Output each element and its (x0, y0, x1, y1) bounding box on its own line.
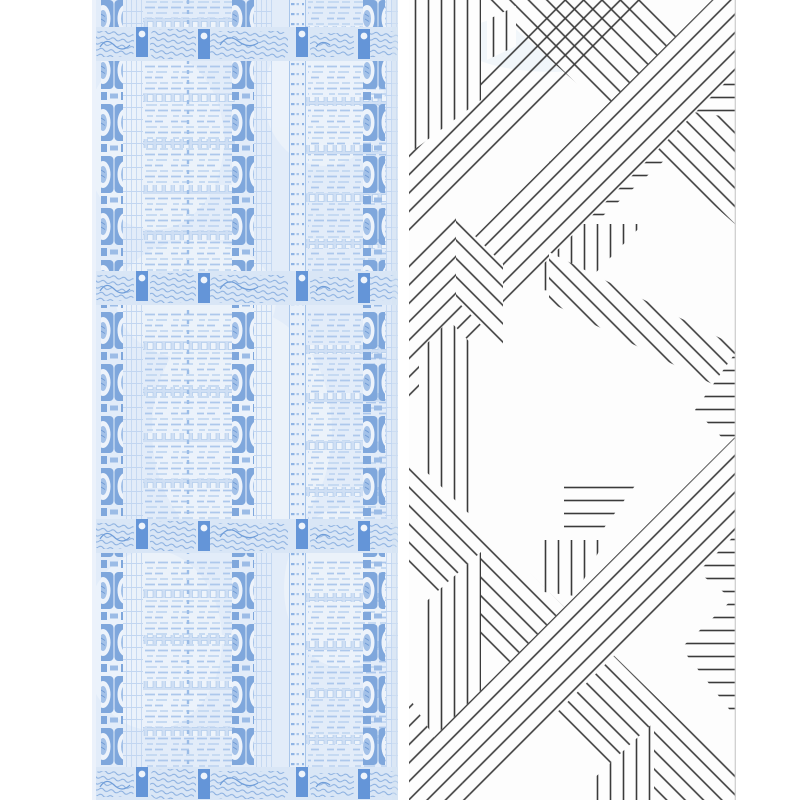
right-edge-shade (392, 0, 398, 800)
left-edge-shade (92, 0, 96, 800)
wallpaper-sample-geometric (409, 0, 736, 800)
measuring-tape-strip (289, 0, 306, 800)
blue-sample-art (92, 0, 398, 800)
wallpaper-sample-blue (92, 0, 398, 800)
photo-canvas (0, 0, 800, 800)
geometric-sample-art (409, 0, 736, 800)
